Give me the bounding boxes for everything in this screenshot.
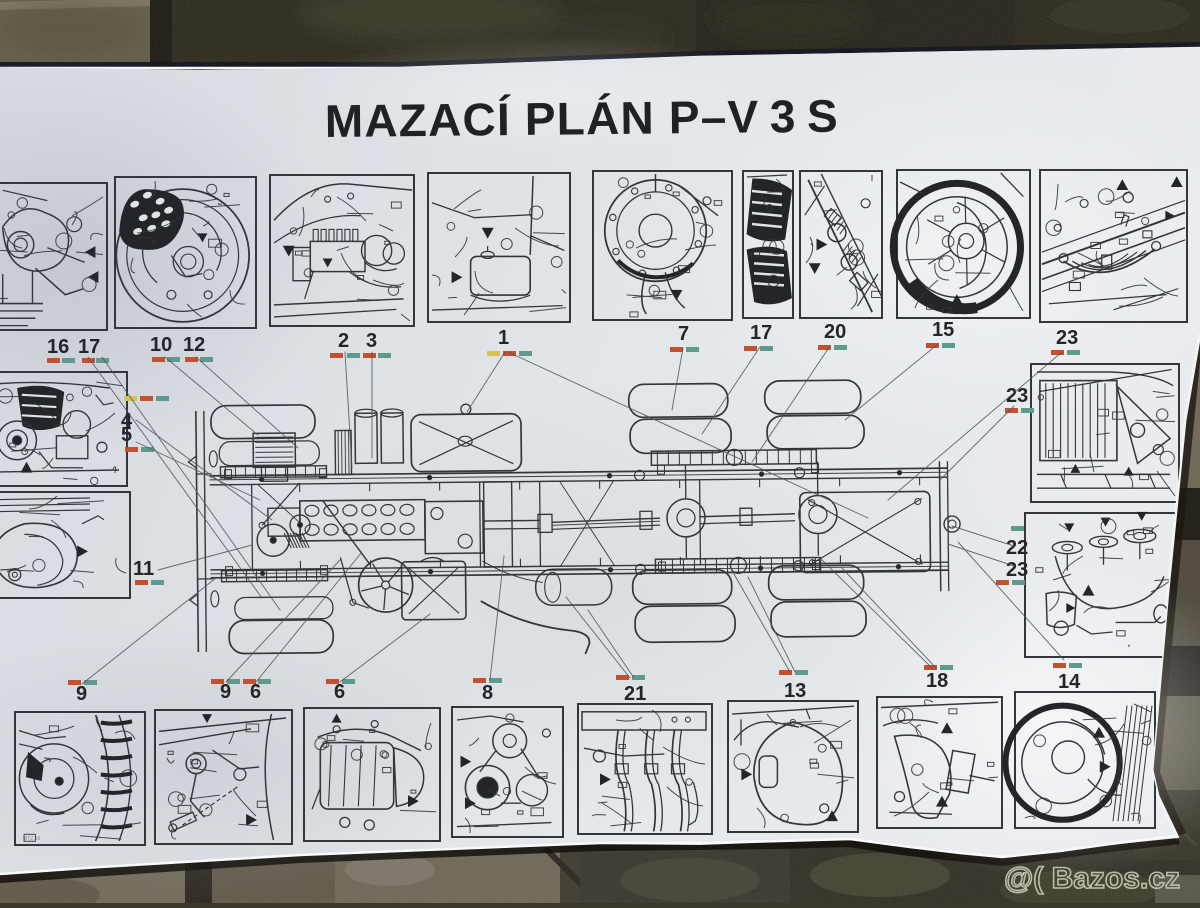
svg-text:17: 17: [78, 336, 100, 358]
svg-text:23: 23: [1006, 559, 1028, 581]
svg-text:21: 21: [624, 683, 646, 705]
svg-text:17: 17: [750, 322, 772, 344]
svg-text:23: 23: [1056, 327, 1078, 349]
svg-text:6: 6: [334, 681, 345, 703]
svg-text:10: 10: [150, 334, 172, 356]
svg-text:12: 12: [183, 334, 205, 356]
svg-text:1: 1: [498, 327, 509, 349]
svg-text:14: 14: [1058, 671, 1081, 693]
svg-text:9: 9: [220, 681, 231, 703]
svg-text:3: 3: [366, 330, 377, 352]
svg-text:7: 7: [678, 323, 689, 345]
svg-text:18: 18: [926, 670, 948, 692]
svg-text:8: 8: [482, 682, 493, 704]
svg-text:5: 5: [121, 424, 132, 446]
svg-text:9: 9: [76, 683, 87, 705]
svg-text:6: 6: [250, 681, 261, 703]
svg-text:2: 2: [338, 330, 349, 352]
svg-text:15: 15: [932, 319, 954, 341]
svg-text:11: 11: [133, 558, 154, 580]
svg-text:@( Bazos.cz: @( Bazos.cz: [1004, 862, 1180, 895]
svg-text:20: 20: [824, 321, 846, 343]
svg-text:22: 22: [1006, 537, 1028, 559]
svg-text:16: 16: [47, 336, 69, 358]
svg-text:13: 13: [784, 680, 806, 702]
svg-text:MAZACÍ PLÁN P–V 3 S: MAZACÍ PLÁN P–V 3 S: [325, 90, 840, 147]
svg-text:23: 23: [1006, 385, 1028, 407]
